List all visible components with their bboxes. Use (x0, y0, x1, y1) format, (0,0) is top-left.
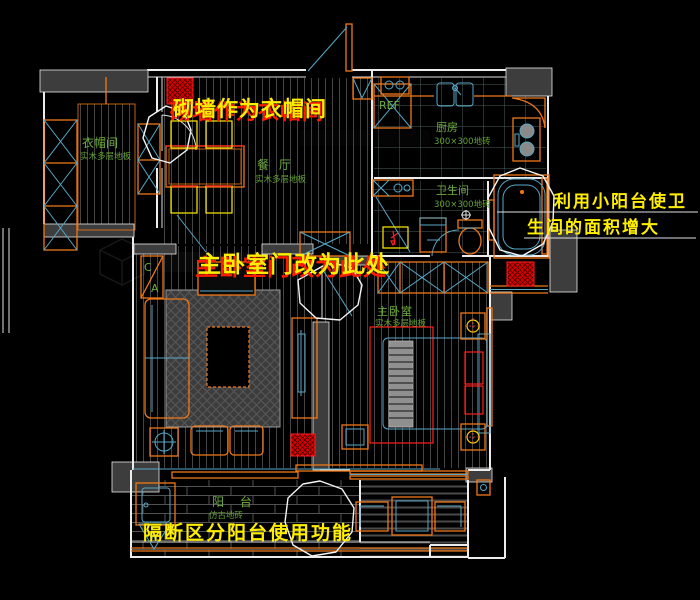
kitchen-label: 厨房 (436, 121, 458, 134)
coffee-table (207, 327, 249, 387)
entry-door (308, 24, 352, 71)
balcony-floor-label: 仿古地砖 (209, 510, 244, 521)
floor-plan-canvas: C A (0, 0, 700, 600)
partition-note: 隔断区分阳台使用功能 (143, 521, 353, 544)
balcony-label: 阳 台 (212, 494, 258, 509)
column (291, 434, 315, 456)
bedroom-floor-label: 实木多层地板 (375, 318, 427, 329)
small-balcony-note-line2: 生间的面积增大 (527, 217, 660, 238)
elevation-letter-a: A (151, 282, 159, 295)
dining-label: 餐 厅 (257, 157, 294, 172)
build-wall-note: 砌墙作为衣帽间 (173, 97, 327, 121)
cloakroom-label: 衣帽间 (82, 135, 118, 150)
small-balcony-note-line1: 利用小阳台使卫 (554, 191, 687, 212)
bedroom-door-note: 主卧室门改为此处 (198, 251, 390, 278)
bathroom-floor-label: 300×300地砖 (434, 199, 491, 210)
fridge-label: REF (379, 99, 400, 112)
wall-block (40, 70, 148, 92)
dining-floor-label: 实木多层地板 (255, 174, 307, 185)
floor-plan-drawing: C A (0, 0, 700, 600)
elevation-letter-c: C (144, 261, 152, 274)
bedroom-label: 主卧室 (377, 304, 413, 318)
kitchen-floor-label: 300×300地砖 (434, 136, 491, 147)
cloakroom-floor-label: 实木多层地板 (80, 151, 132, 162)
column (507, 262, 534, 286)
bathroom-label: 卫生间 (436, 183, 469, 197)
